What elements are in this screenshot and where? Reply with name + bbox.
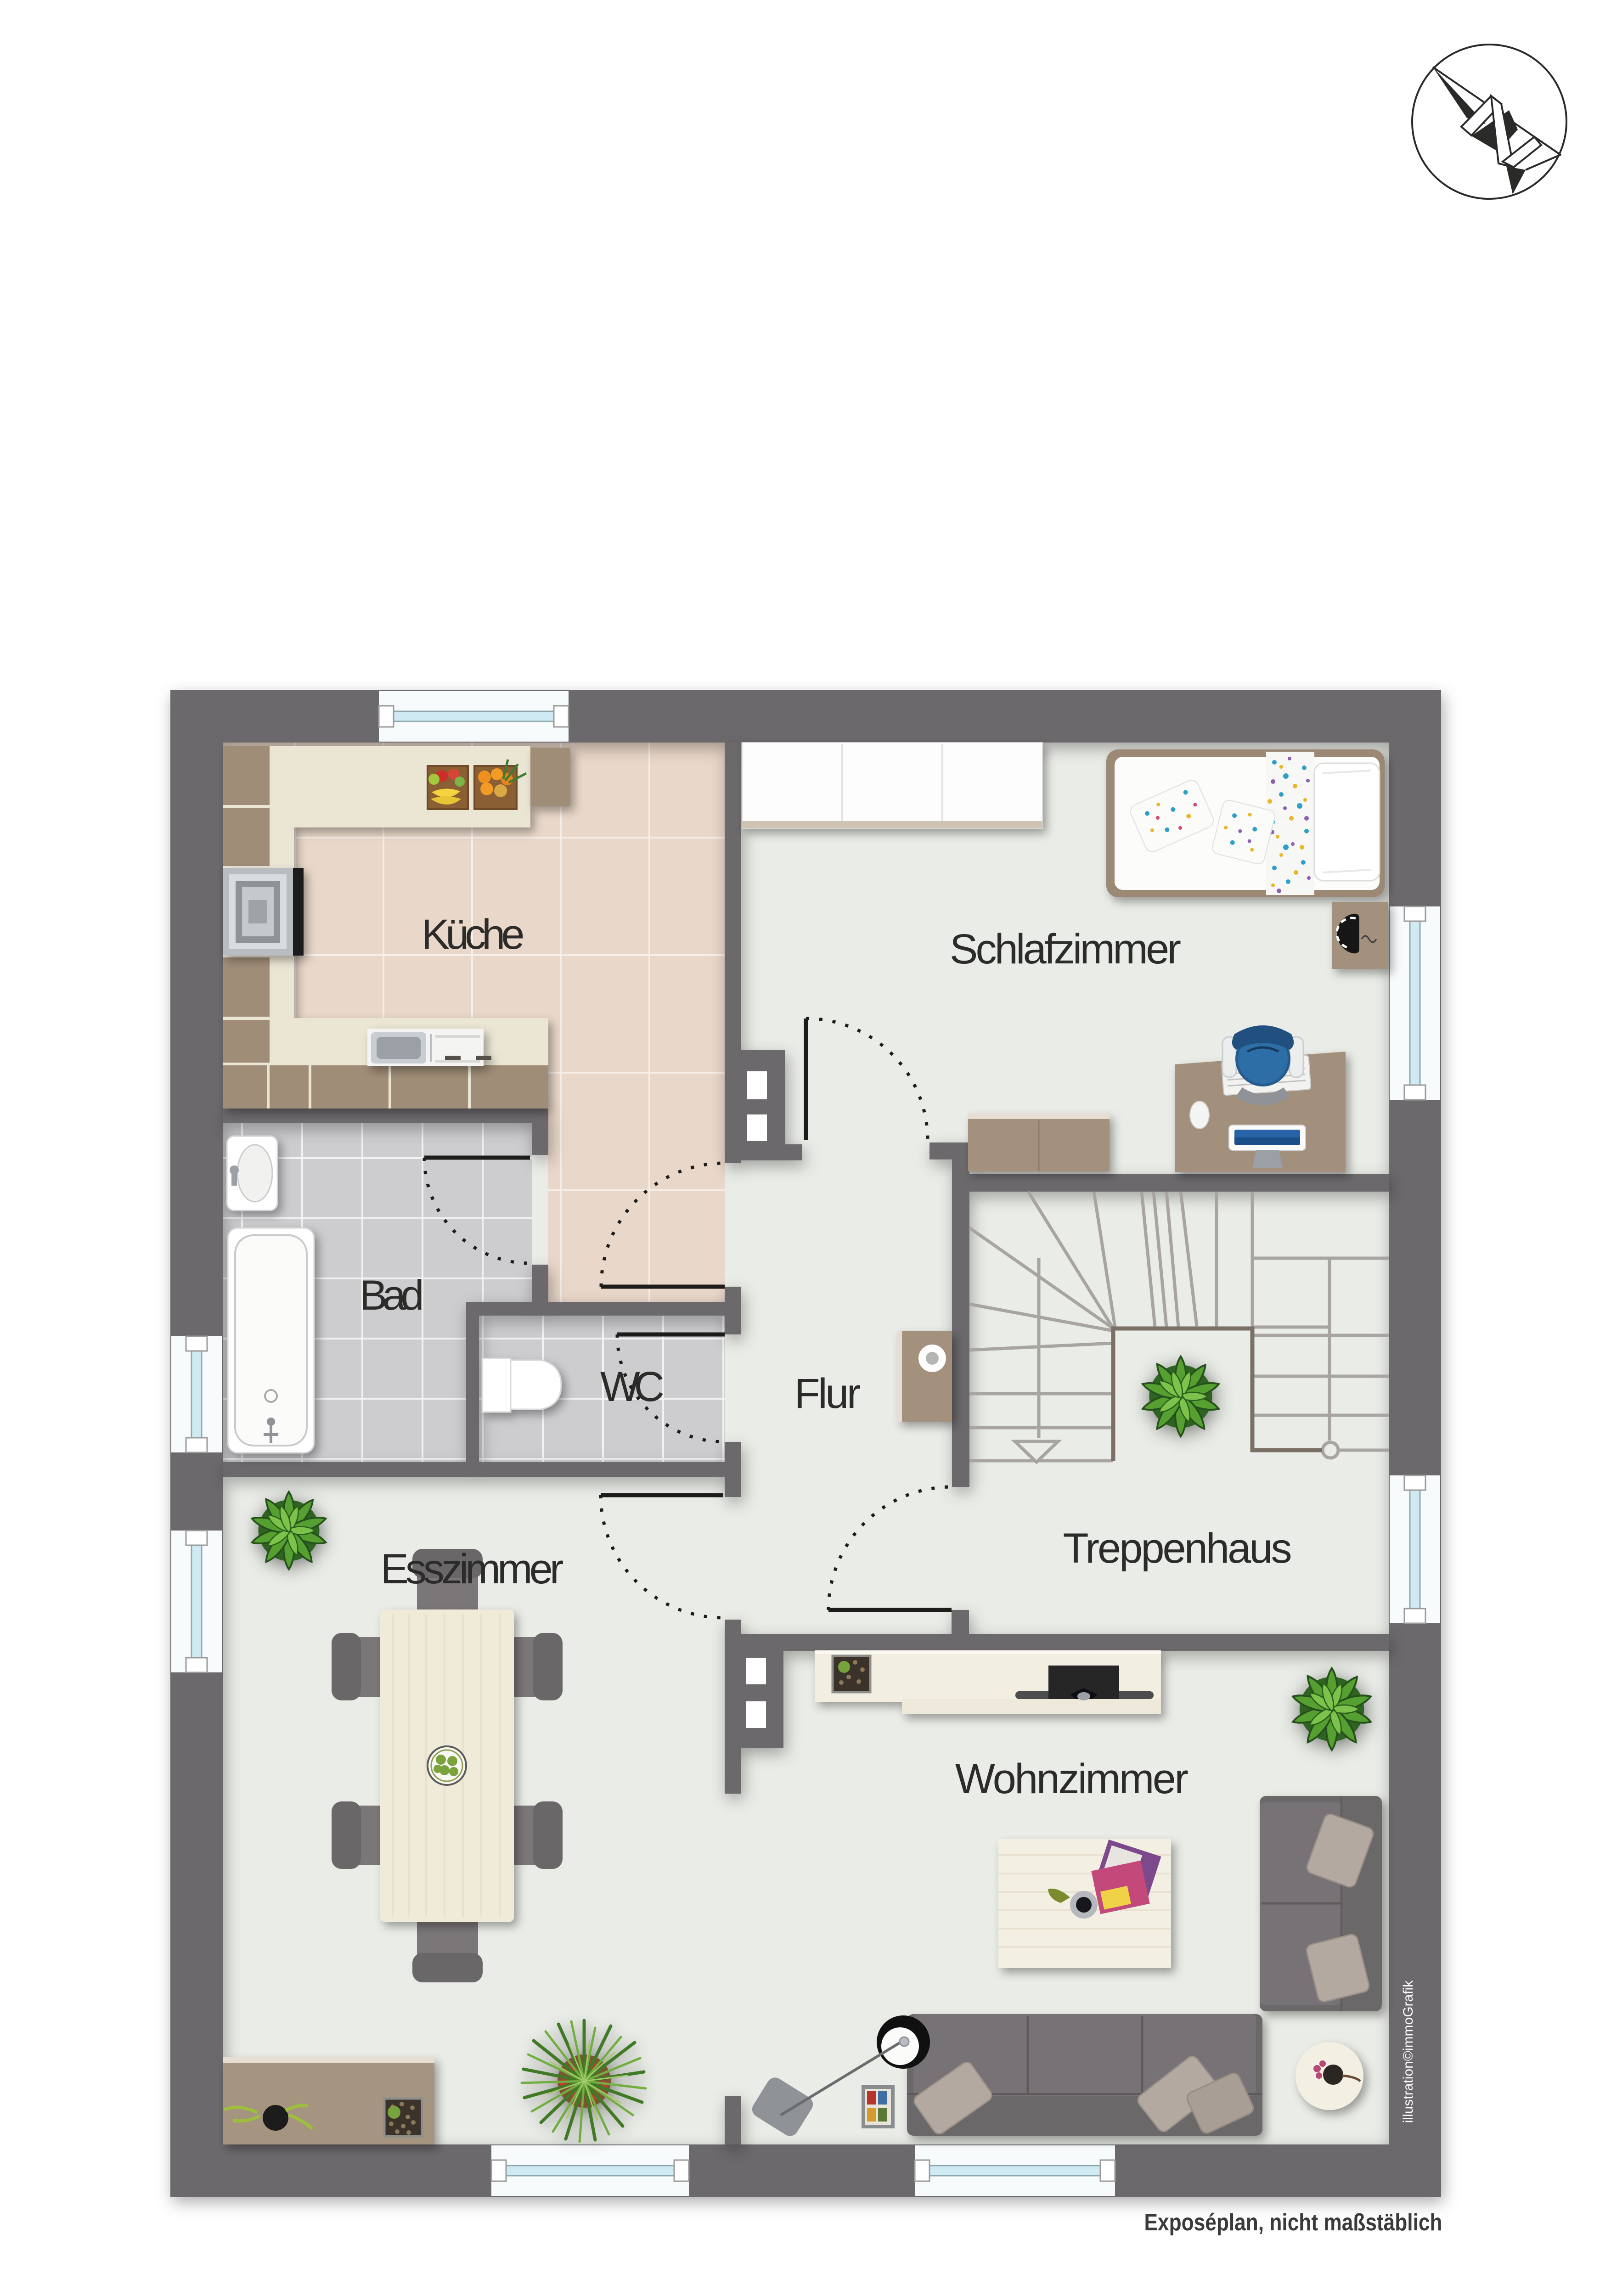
svg-text:WC: WC xyxy=(600,1363,665,1410)
svg-text:Bad: Bad xyxy=(360,1272,424,1319)
svg-text:Küche: Küche xyxy=(422,911,525,958)
svg-text:Schlafzimmer: Schlafzimmer xyxy=(950,926,1181,973)
svg-text:Flur: Flur xyxy=(794,1370,861,1417)
svg-text:Exposéplan, nicht maßstäblich: Exposéplan, nicht maßstäblich xyxy=(1144,2209,1442,2236)
svg-text:Treppenhaus: Treppenhaus xyxy=(1063,1525,1292,1572)
svg-text:Esszimmer: Esszimmer xyxy=(381,1546,564,1593)
svg-text:illustration©immoGrafik: illustration©immoGrafik xyxy=(1401,1980,1416,2123)
svg-text:Wohnzimmer: Wohnzimmer xyxy=(955,1756,1189,1802)
